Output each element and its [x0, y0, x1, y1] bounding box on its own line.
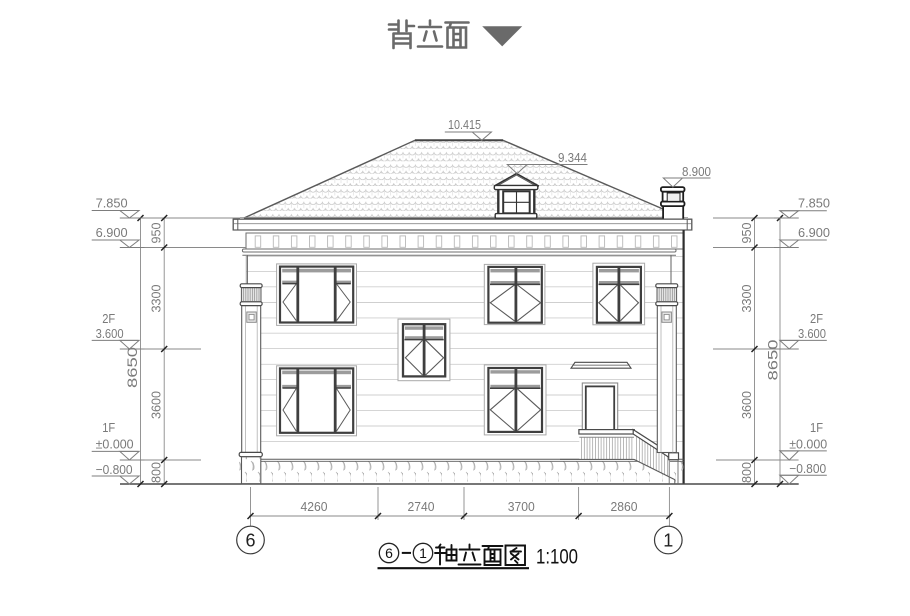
- svg-text:3.600: 3.600: [798, 326, 826, 341]
- svg-text:3300: 3300: [150, 284, 164, 312]
- svg-text:−0.800: −0.800: [96, 462, 133, 477]
- svg-text:1:100: 1:100: [536, 546, 578, 569]
- svg-text:800: 800: [740, 462, 754, 483]
- svg-text:7.850: 7.850: [798, 196, 830, 211]
- svg-text:3600: 3600: [740, 391, 754, 419]
- svg-text:±0.000: ±0.000: [96, 437, 134, 452]
- svg-text:2740: 2740: [408, 500, 435, 514]
- svg-text:2860: 2860: [611, 500, 638, 514]
- svg-text:8650: 8650: [766, 340, 781, 381]
- svg-text:4260: 4260: [301, 500, 328, 514]
- svg-text:±0.000: ±0.000: [789, 437, 827, 452]
- svg-text:8650: 8650: [125, 347, 140, 388]
- svg-text:6.900: 6.900: [96, 225, 128, 240]
- svg-text:1F: 1F: [810, 421, 823, 435]
- svg-text:3600: 3600: [150, 391, 164, 419]
- svg-text:2F: 2F: [810, 312, 823, 326]
- svg-text:9.344: 9.344: [558, 150, 587, 165]
- svg-text:950: 950: [740, 222, 754, 243]
- svg-text:6: 6: [245, 530, 255, 550]
- svg-text:7.850: 7.850: [96, 196, 128, 211]
- svg-text:1: 1: [419, 545, 427, 561]
- svg-text:−0.800: −0.800: [789, 461, 826, 476]
- svg-text:10.415: 10.415: [448, 117, 481, 132]
- svg-text:950: 950: [150, 222, 164, 243]
- svg-text:8.900: 8.900: [682, 164, 711, 179]
- svg-text:800: 800: [150, 462, 164, 483]
- svg-text:3300: 3300: [740, 284, 754, 312]
- svg-text:6.900: 6.900: [798, 225, 830, 240]
- svg-text:2F: 2F: [102, 312, 115, 326]
- svg-text:3.600: 3.600: [96, 326, 124, 341]
- svg-text:6: 6: [385, 545, 393, 561]
- svg-text:3700: 3700: [508, 500, 535, 514]
- svg-text:1F: 1F: [102, 421, 115, 435]
- svg-text:1: 1: [663, 530, 673, 550]
